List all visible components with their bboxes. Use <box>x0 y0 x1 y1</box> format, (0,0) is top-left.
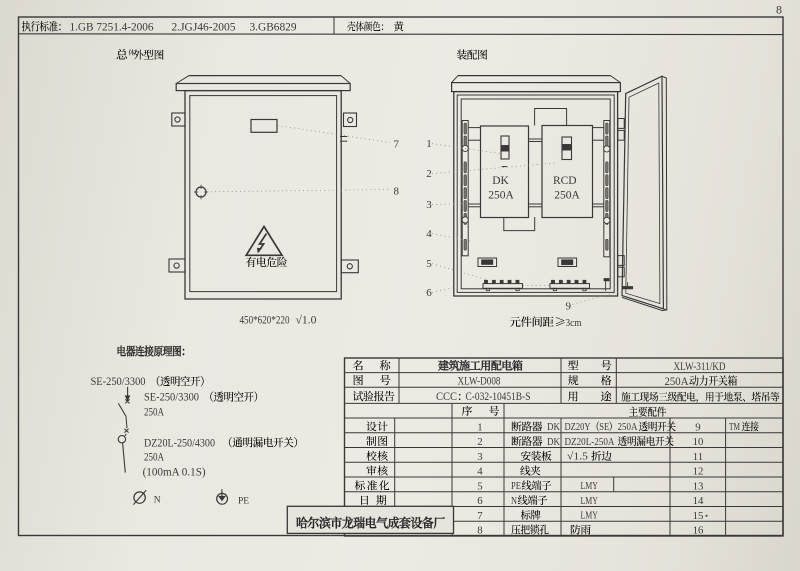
svg-text:SE-250/3300: SE-250/3300 <box>144 392 199 404</box>
svg-text:XLW-D008: XLW-D008 <box>458 375 501 387</box>
svg-text:DZ20L-250/4300: DZ20L-250/4300 <box>144 437 215 449</box>
svg-text:CCC: CCC <box>436 391 457 403</box>
svg-text:250A: 250A <box>144 407 165 419</box>
svg-text:SE-250/3300: SE-250/3300 <box>91 376 146 388</box>
svg-text:XLW-311/KD: XLW-311/KD <box>674 361 726 373</box>
svg-text:DK: DK <box>492 175 509 187</box>
svg-text:6: 6 <box>426 287 432 299</box>
svg-text:9: 9 <box>695 421 700 433</box>
svg-text:LMY: LMY <box>581 510 599 522</box>
svg-text:8: 8 <box>776 3 782 17</box>
svg-text:2: 2 <box>477 436 482 448</box>
svg-text:250A: 250A <box>618 421 638 433</box>
svg-text:1: 1 <box>426 138 432 150</box>
svg-text:3: 3 <box>477 451 482 463</box>
svg-text:7: 7 <box>477 510 483 522</box>
svg-text:1.GB 7251.4-2006: 1.GB 7251.4-2006 <box>70 21 154 33</box>
svg-text:250A: 250A <box>665 376 689 388</box>
svg-text:12: 12 <box>693 466 704 478</box>
svg-text:250A: 250A <box>554 190 580 202</box>
svg-text:DK: DK <box>547 421 560 433</box>
svg-text:15: 15 <box>693 510 704 522</box>
svg-text:N: N <box>154 496 161 506</box>
svg-text:LMY: LMY <box>581 480 599 492</box>
svg-text:250A: 250A <box>488 190 514 202</box>
svg-text:√1.0: √1.0 <box>296 314 317 327</box>
svg-text:C-032-10451B-S: C-032-10451B-S <box>466 391 531 403</box>
svg-text:√1.5: √1.5 <box>567 451 588 463</box>
svg-text:13: 13 <box>693 480 704 492</box>
svg-text:8: 8 <box>394 186 400 198</box>
svg-text:3.GB6829: 3.GB6829 <box>250 21 297 33</box>
svg-text:3cm: 3cm <box>566 318 583 329</box>
svg-text:DK: DK <box>547 436 560 448</box>
svg-text:PE: PE <box>511 480 521 492</box>
svg-text:4: 4 <box>426 228 432 240</box>
svg-text:9: 9 <box>566 301 572 313</box>
svg-text:450*620*220: 450*620*220 <box>240 315 290 327</box>
svg-text:2: 2 <box>426 168 432 180</box>
svg-text:DZ20Y: DZ20Y <box>565 421 591 433</box>
svg-text:SE: SE <box>599 421 609 433</box>
svg-text:TM: TM <box>729 421 740 433</box>
svg-text:LMY: LMY <box>581 495 599 507</box>
svg-text:16: 16 <box>693 525 704 537</box>
svg-text:6: 6 <box>477 495 483 507</box>
svg-text:2.JGJ46-2005: 2.JGJ46-2005 <box>172 21 236 33</box>
svg-text:8: 8 <box>477 525 482 537</box>
svg-text:DZ20L-250A: DZ20L-250A <box>565 436 615 448</box>
svg-text:N: N <box>511 495 517 507</box>
svg-text:250A: 250A <box>144 452 165 464</box>
svg-text:1: 1 <box>477 421 482 433</box>
svg-text:PE: PE <box>238 497 249 507</box>
svg-text:RCD: RCD <box>553 175 577 187</box>
svg-text:7: 7 <box>394 139 400 151</box>
svg-text:5: 5 <box>477 480 482 492</box>
svg-text:(100mA 0.1S): (100mA 0.1S) <box>143 467 206 479</box>
svg-text:11: 11 <box>693 451 703 463</box>
svg-text:10: 10 <box>693 436 704 448</box>
svg-text:4: 4 <box>477 466 483 478</box>
svg-text:5: 5 <box>426 258 432 270</box>
svg-text:3: 3 <box>426 199 432 211</box>
svg-text:14: 14 <box>693 495 704 507</box>
